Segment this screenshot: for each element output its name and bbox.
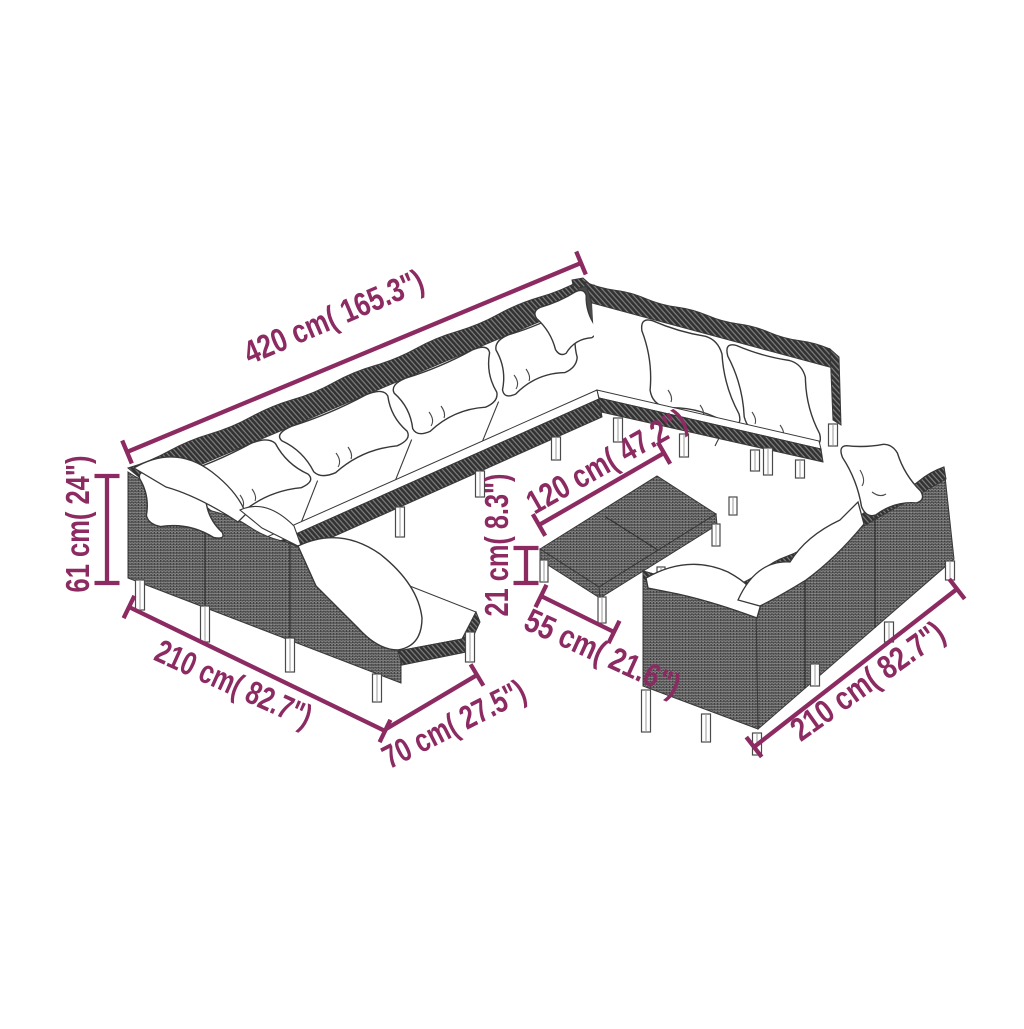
svg-text:61 cm( 24"): 61 cm( 24") <box>59 456 96 593</box>
svg-text:21 cm( 8.3"): 21 cm( 8.3") <box>478 474 515 617</box>
